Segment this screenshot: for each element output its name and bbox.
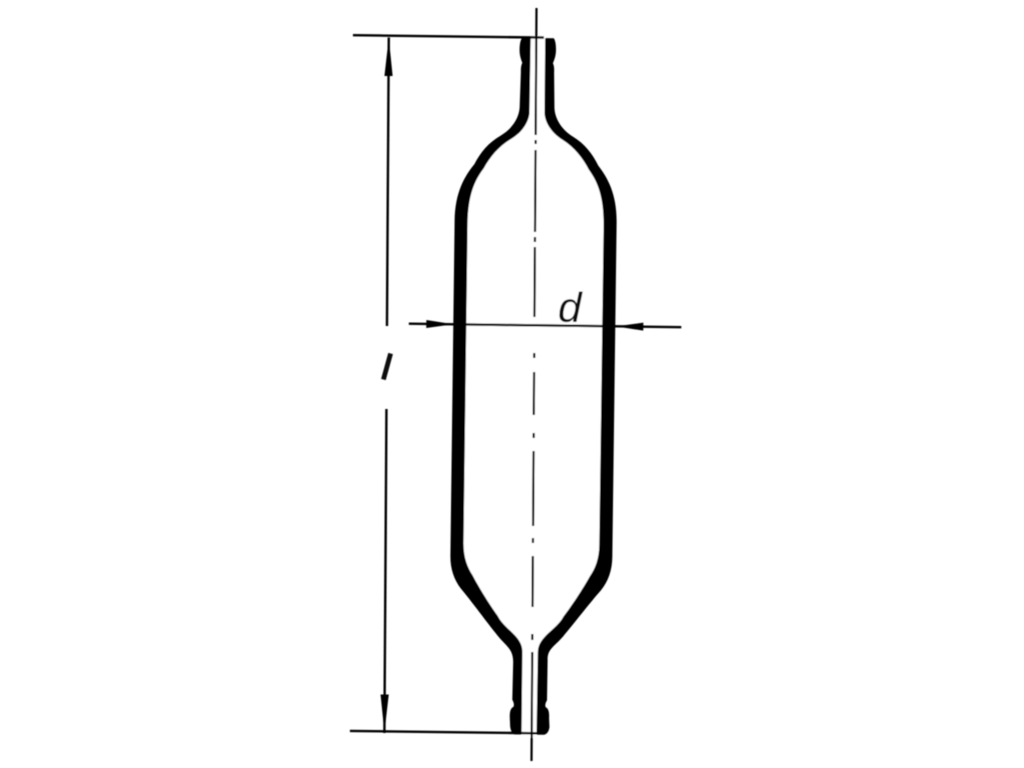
svg-text:d: d xyxy=(558,284,584,331)
